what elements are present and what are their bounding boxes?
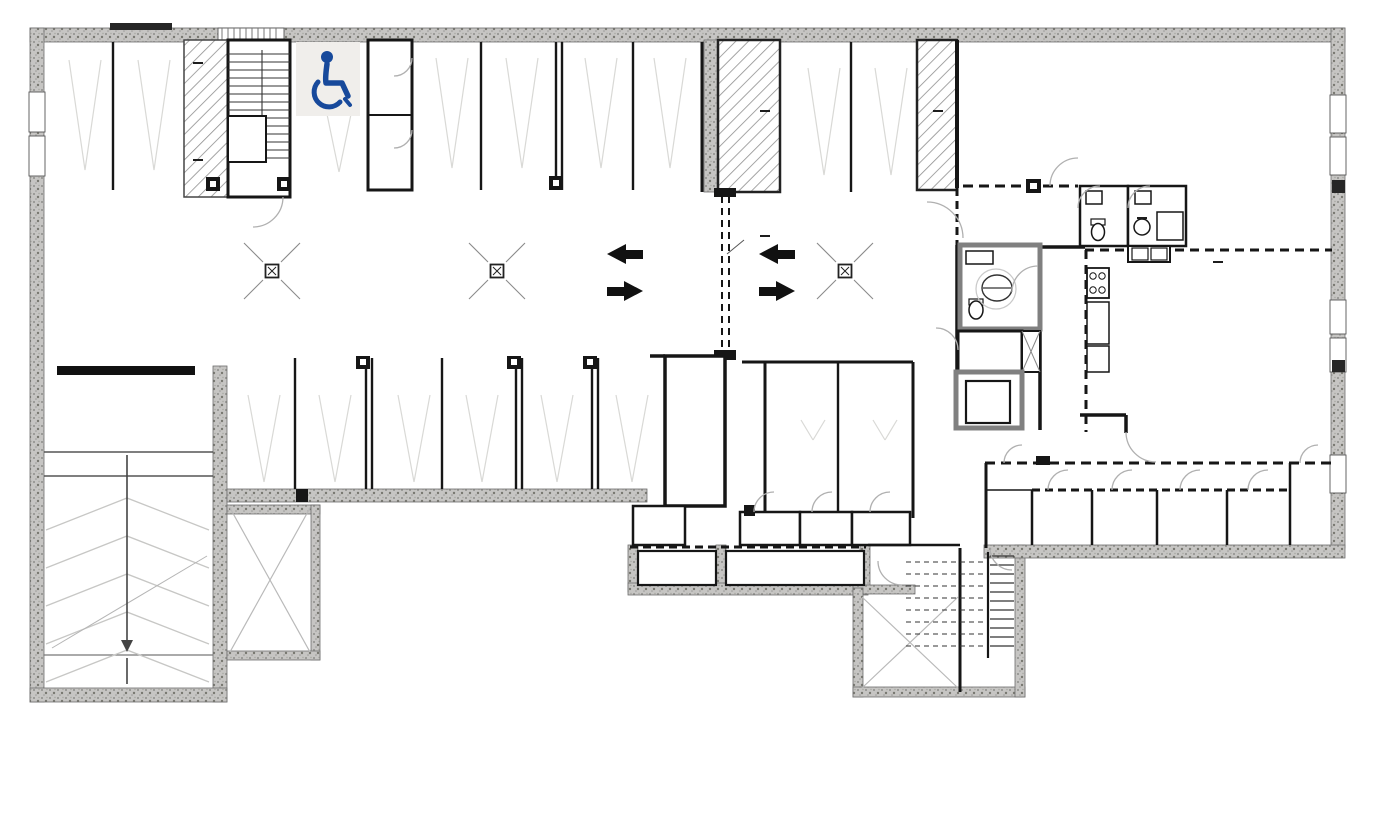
elevator-core <box>956 245 1040 430</box>
mech-water-rooms <box>630 545 960 585</box>
x-room <box>230 508 310 652</box>
fire-tag-kitchen <box>1213 261 1223 263</box>
parking-garage-floor-plan <box>0 0 1377 816</box>
kitchen-fixtures <box>1087 246 1170 372</box>
rated-shaft-left <box>718 40 780 192</box>
fire-tag-stair-top <box>193 62 203 64</box>
center-rated-wall <box>714 188 744 360</box>
fire-tag-shaft-right <box>933 110 943 112</box>
wheelchair-icon <box>296 42 360 116</box>
mid-storage-boxes <box>633 506 910 545</box>
fire-tag-shaft-left <box>760 110 770 112</box>
storage-3b-4b-block <box>368 40 412 190</box>
floor-plan-drawing <box>0 0 1377 816</box>
fire-tag-gym-bath <box>1137 217 1147 219</box>
traffic-arrows <box>607 244 795 301</box>
fire-tag-center-wall <box>760 235 770 237</box>
stairwell-bottom <box>862 548 1014 692</box>
rated-shaft-right <box>917 40 957 190</box>
fire-tag-stair-bottom <box>193 159 203 161</box>
corridor-column-core <box>1030 183 1037 189</box>
party-wall-column <box>1036 456 1050 465</box>
electrical-room <box>650 356 725 506</box>
ramp <box>44 366 213 684</box>
right-storage-row <box>986 463 1290 548</box>
